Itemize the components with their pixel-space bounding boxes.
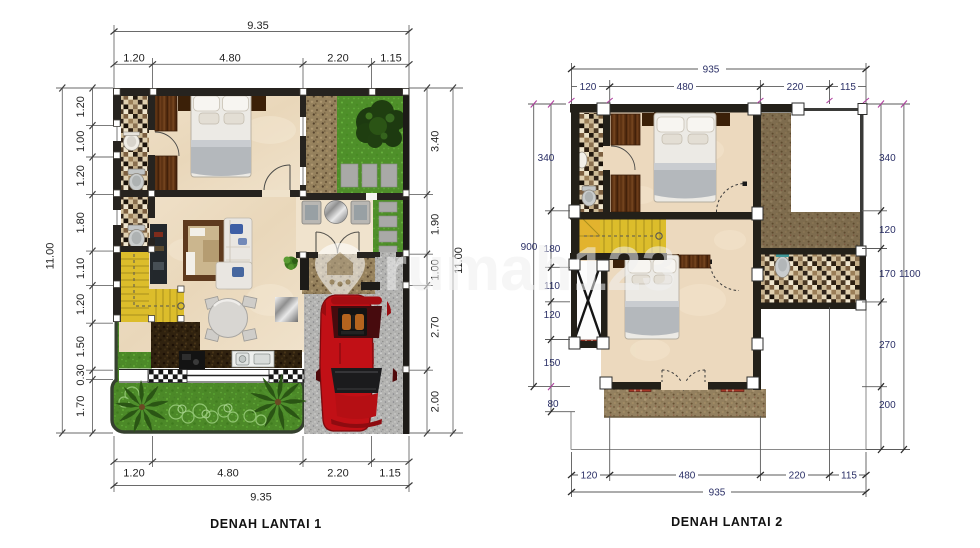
svg-text:9.35: 9.35	[250, 492, 271, 504]
svg-text:2.00: 2.00	[430, 391, 442, 412]
svg-text:200: 200	[879, 400, 896, 411]
svg-text:1.10: 1.10	[75, 258, 87, 279]
svg-text:DENAH LANTAI 1: DENAH LANTAI 1	[210, 517, 322, 531]
svg-text:270: 270	[879, 340, 896, 351]
svg-text:120: 120	[879, 225, 896, 236]
svg-text:1.70: 1.70	[75, 396, 87, 417]
svg-text:1.80: 1.80	[75, 212, 87, 233]
svg-text:1100: 1100	[899, 269, 921, 280]
svg-text:115: 115	[840, 82, 856, 93]
svg-text:1.20: 1.20	[75, 294, 87, 315]
svg-text:9.35: 9.35	[247, 20, 268, 32]
svg-text:1.20: 1.20	[123, 53, 144, 65]
svg-text:rumah123: rumah123	[383, 235, 676, 304]
svg-text:2.20: 2.20	[327, 468, 348, 480]
svg-text:1.00: 1.00	[75, 131, 87, 152]
svg-text:1.15: 1.15	[380, 53, 401, 65]
svg-text:2.70: 2.70	[430, 316, 442, 337]
svg-text:1.20: 1.20	[123, 468, 144, 480]
svg-text:935: 935	[703, 65, 720, 76]
svg-text:1.15: 1.15	[379, 468, 400, 480]
svg-text:11.00: 11.00	[45, 243, 57, 270]
svg-text:150: 150	[544, 358, 561, 369]
svg-text:2.20: 2.20	[327, 53, 348, 65]
svg-text:340: 340	[879, 153, 896, 164]
svg-text:170: 170	[879, 269, 896, 280]
svg-text:115: 115	[841, 471, 857, 482]
svg-text:120: 120	[580, 82, 597, 93]
svg-text:DENAH LANTAI 2: DENAH LANTAI 2	[671, 515, 783, 529]
svg-text:0.30: 0.30	[75, 364, 87, 385]
svg-text:220: 220	[787, 82, 804, 93]
svg-text:480: 480	[679, 471, 696, 482]
svg-text:340: 340	[538, 153, 555, 164]
svg-text:4.80: 4.80	[217, 468, 238, 480]
svg-text:935: 935	[709, 488, 726, 499]
svg-text:1.20: 1.20	[75, 165, 87, 186]
svg-text:480: 480	[677, 82, 694, 93]
svg-text:1.20: 1.20	[75, 96, 87, 117]
svg-text:220: 220	[789, 471, 806, 482]
svg-text:1.90: 1.90	[430, 214, 442, 235]
svg-text:80: 80	[547, 399, 559, 410]
svg-text:120: 120	[544, 310, 561, 321]
svg-text:1.50: 1.50	[75, 336, 87, 357]
svg-text:3.40: 3.40	[430, 131, 442, 152]
svg-text:120: 120	[581, 471, 598, 482]
svg-text:4.80: 4.80	[219, 53, 240, 65]
